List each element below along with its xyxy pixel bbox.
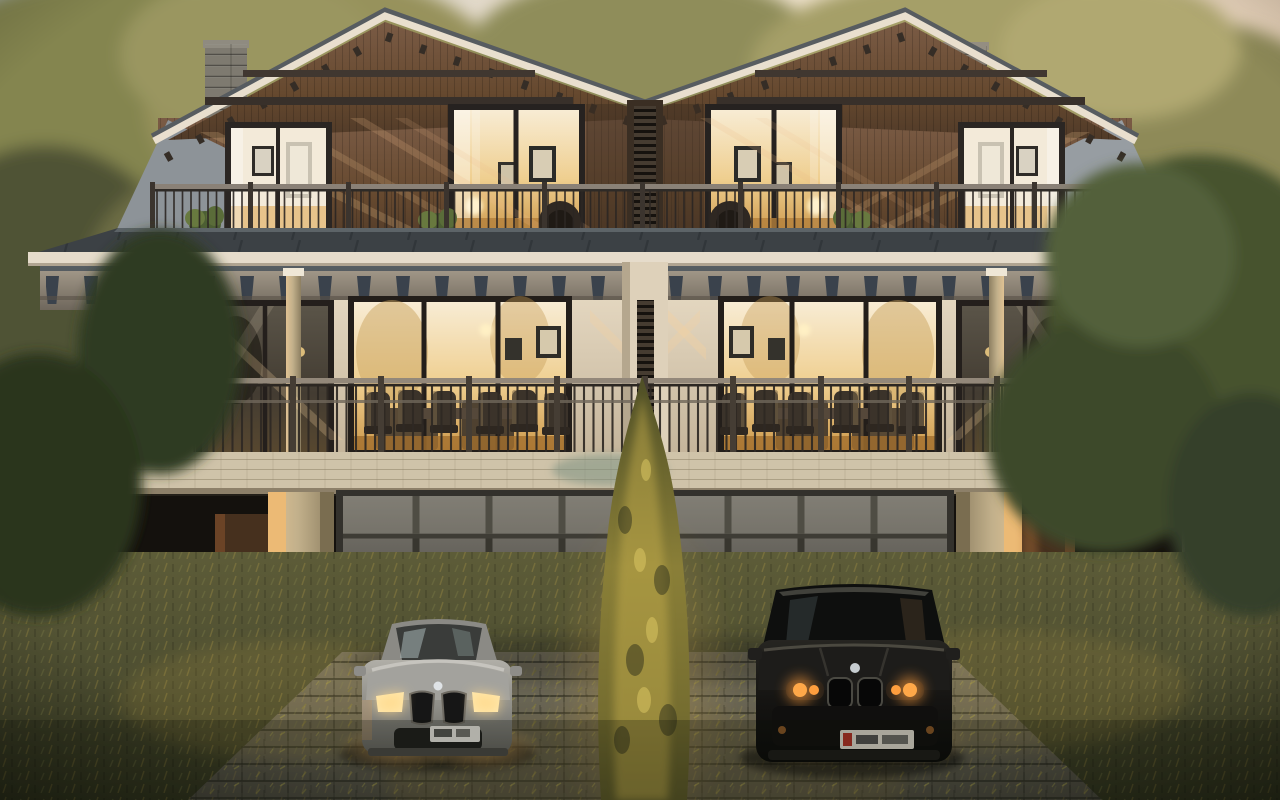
duplex-dusk-rendering bbox=[0, 0, 1280, 800]
atmosphere-vignette bbox=[0, 0, 1280, 800]
rendering-canvas bbox=[0, 0, 1280, 800]
